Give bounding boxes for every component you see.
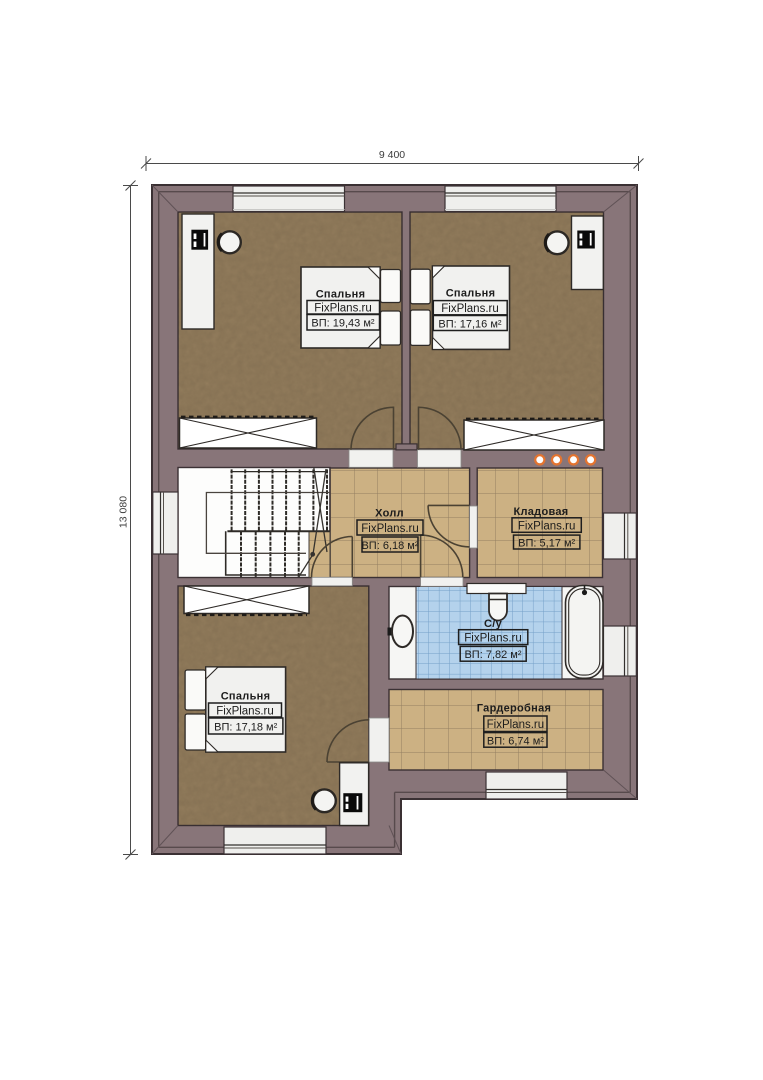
svg-text:ВП: 7,82 м²: ВП: 7,82 м² (464, 649, 521, 661)
svg-text:Спальня: Спальня (446, 288, 496, 300)
svg-text:ВП: 6,74 м²: ВП: 6,74 м² (487, 735, 544, 747)
svg-text:FixPlans.ru: FixPlans.ru (518, 521, 576, 533)
svg-text:Гардеробная: Гардеробная (477, 703, 551, 715)
svg-text:Холл: Холл (375, 508, 404, 520)
svg-text:FixPlans.ru: FixPlans.ru (464, 633, 522, 645)
svg-text:ВП: 19,43 м²: ВП: 19,43 м² (311, 318, 375, 330)
svg-text:FixPlans.ru: FixPlans.ru (216, 705, 274, 717)
svg-text:FixPlans.ru: FixPlans.ru (361, 523, 419, 535)
svg-text:ВП: 6,18 м²: ВП: 6,18 м² (361, 540, 418, 552)
svg-text:С/у: С/у (484, 618, 503, 630)
svg-text:FixPlans.ru: FixPlans.ru (441, 303, 499, 315)
svg-text:FixPlans.ru: FixPlans.ru (314, 303, 372, 315)
svg-text:9 400: 9 400 (379, 149, 405, 161)
svg-text:Спальня: Спальня (316, 289, 366, 301)
svg-text:ВП: 17,16 м²: ВП: 17,16 м² (438, 319, 502, 331)
svg-text:Кладовая: Кладовая (513, 506, 568, 518)
svg-text:Спальня: Спальня (221, 691, 271, 703)
svg-text:13 080: 13 080 (118, 496, 130, 528)
svg-text:FixPlans.ru: FixPlans.ru (487, 719, 545, 731)
svg-text:ВП: 5,17 м²: ВП: 5,17 м² (518, 538, 575, 550)
svg-text:ВП: 17,18 м²: ВП: 17,18 м² (214, 722, 278, 734)
